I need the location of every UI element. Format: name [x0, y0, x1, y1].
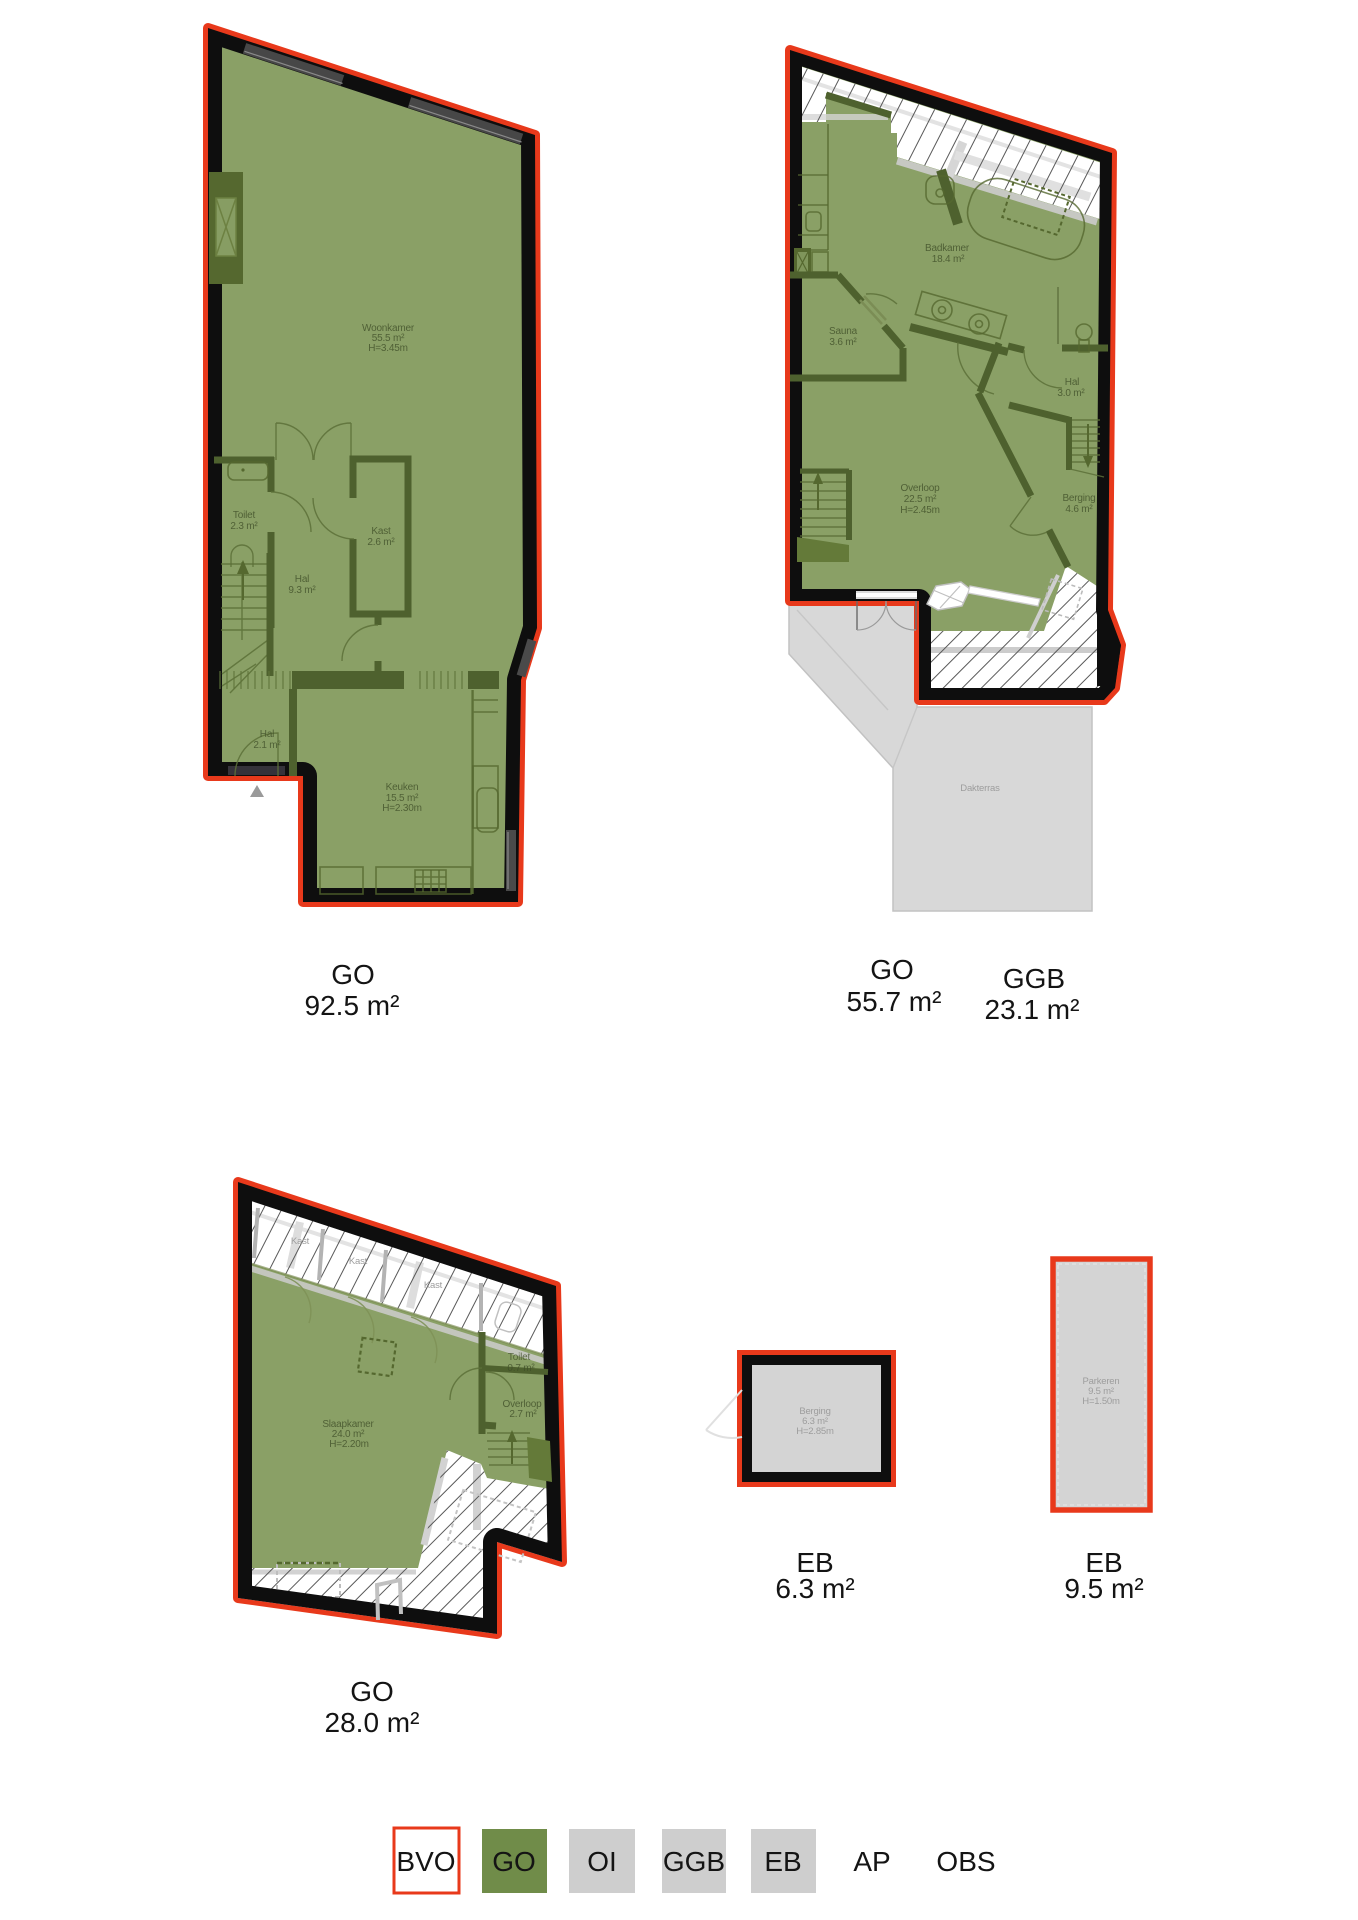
- svg-text:EB: EB: [764, 1846, 801, 1877]
- svg-text:H=3.45m: H=3.45m: [368, 343, 407, 354]
- svg-text:92.5 m²: 92.5 m²: [305, 990, 400, 1021]
- svg-text:Berging: Berging: [1062, 493, 1095, 504]
- svg-text:H=2.20m: H=2.20m: [329, 1439, 368, 1450]
- svg-text:22.5 m²: 22.5 m²: [904, 494, 937, 505]
- svg-text:AP: AP: [853, 1846, 890, 1877]
- svg-text:H=2.45m: H=2.45m: [900, 505, 939, 516]
- svg-text:H=2.30m: H=2.30m: [382, 803, 421, 814]
- svg-text:GO: GO: [492, 1846, 536, 1877]
- svg-text:OI: OI: [587, 1846, 617, 1877]
- svg-text:2.7 m²: 2.7 m²: [509, 1409, 537, 1420]
- svg-text:3.6 m²: 3.6 m²: [829, 337, 857, 348]
- svg-text:18.4 m²: 18.4 m²: [932, 254, 965, 265]
- svg-text:GGB: GGB: [1003, 963, 1065, 994]
- svg-text:Kast: Kast: [424, 1280, 443, 1291]
- svg-text:OBS: OBS: [936, 1846, 995, 1877]
- svg-text:Keuken: Keuken: [386, 782, 419, 793]
- svg-text:9.3 m²: 9.3 m²: [288, 585, 316, 596]
- svg-text:2.1 m²: 2.1 m²: [253, 740, 281, 751]
- svg-text:GO: GO: [350, 1676, 394, 1707]
- svg-text:9.5 m²: 9.5 m²: [1064, 1573, 1143, 1604]
- svg-text:Overloop: Overloop: [901, 483, 941, 494]
- svg-text:Kast: Kast: [349, 1256, 368, 1267]
- svg-text:Badkamer: Badkamer: [925, 243, 970, 254]
- svg-text:28.0 m²: 28.0 m²: [325, 1707, 420, 1738]
- svg-text:Kast: Kast: [371, 526, 391, 537]
- svg-text:GO: GO: [870, 954, 914, 985]
- svg-text:55.7 m²: 55.7 m²: [847, 986, 942, 1017]
- svg-text:Hal: Hal: [260, 729, 274, 740]
- svg-text:H=2.85m: H=2.85m: [796, 1426, 834, 1437]
- svg-text:Kast: Kast: [291, 1236, 310, 1247]
- svg-text:23.1 m²: 23.1 m²: [985, 994, 1080, 1025]
- svg-text:GO: GO: [331, 959, 375, 990]
- svg-text:Toilet: Toilet: [233, 510, 256, 521]
- svg-text:2.6 m²: 2.6 m²: [367, 537, 395, 548]
- svg-text:6.3 m²: 6.3 m²: [775, 1573, 854, 1604]
- svg-text:Hal: Hal: [295, 574, 309, 585]
- svg-text:2.3 m²: 2.3 m²: [230, 521, 258, 532]
- svg-text:Dakterras: Dakterras: [960, 783, 1000, 794]
- svg-text:4.6 m²: 4.6 m²: [1065, 504, 1093, 515]
- svg-text:Sauna: Sauna: [829, 326, 858, 337]
- svg-text:H=1.50m: H=1.50m: [1082, 1396, 1120, 1407]
- svg-text:GGB: GGB: [663, 1846, 725, 1877]
- svg-text:3.0 m²: 3.0 m²: [1057, 388, 1085, 399]
- svg-text:Toilet: Toilet: [508, 1352, 531, 1363]
- svg-text:0.7 m²: 0.7 m²: [507, 1363, 535, 1374]
- svg-text:BVO: BVO: [396, 1846, 455, 1877]
- svg-text:Hal: Hal: [1065, 377, 1079, 388]
